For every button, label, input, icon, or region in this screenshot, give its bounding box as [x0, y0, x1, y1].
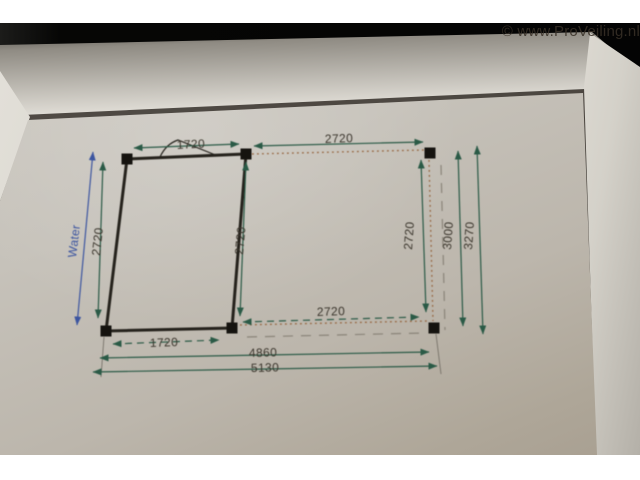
auction-photo-page: 1720 2720 Water 2720 2720 2720 3000 3270…	[0, 0, 640, 480]
framed-drawing-photo: 1720 2720 Water 2720 2720 2720 3000 3270…	[0, 23, 640, 455]
proveiling-watermark: © www.ProVeiling.nl	[0, 23, 640, 455]
